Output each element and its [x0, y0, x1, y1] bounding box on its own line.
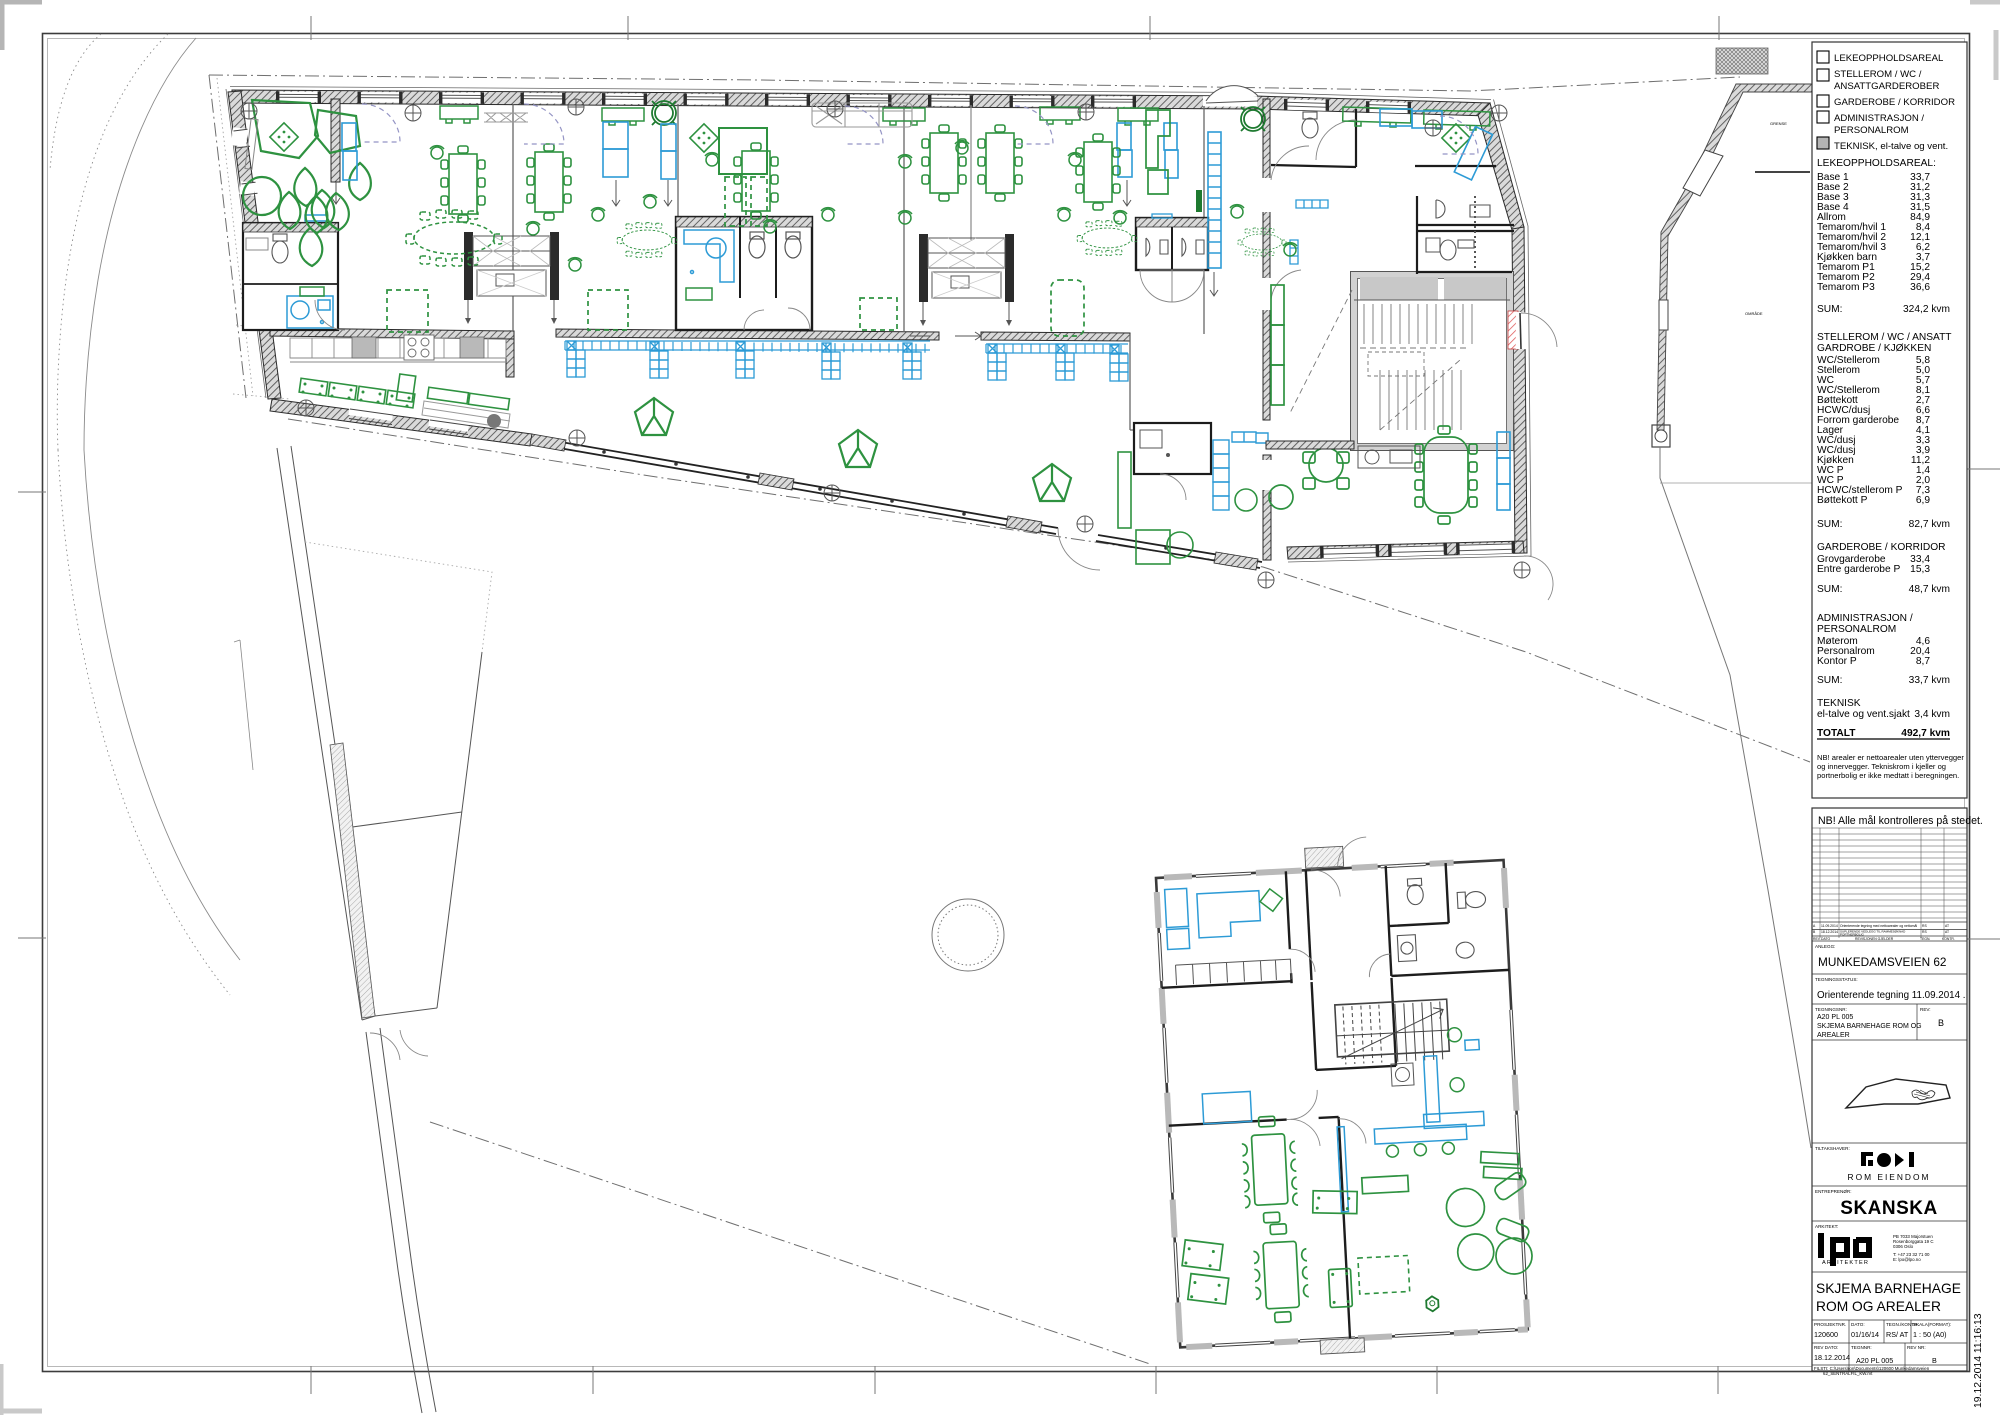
svg-text:GARDEROBE / KORRIDOR: GARDEROBE / KORRIDOR — [1834, 97, 1955, 108]
svg-text:Orienterende tegning med netto: Orienterende tegning med nettoarealer og… — [1840, 924, 1917, 928]
svg-text:ROM OG AREALER: ROM OG AREALER — [1816, 1299, 1941, 1314]
svg-text:PERSONALROM: PERSONALROM — [1834, 125, 1909, 136]
svg-text:SKALA(FORMAT):: SKALA(FORMAT): — [1913, 1322, 1951, 1327]
svg-text:REV.: REV. — [1813, 937, 1821, 941]
svg-text:DATO:: DATO: — [1851, 1322, 1865, 1327]
svg-text:TEKNISK, el-talve og vent.: TEKNISK, el-talve og vent. — [1834, 141, 1948, 152]
svg-text:492,7 kvm: 492,7 kvm — [1901, 728, 1950, 739]
svg-text:48,7 kvm: 48,7 kvm — [1909, 584, 1950, 595]
svg-text:DATO: DATO — [1821, 937, 1830, 941]
svg-text:18.12.2014: 18.12.2014 — [1814, 1353, 1850, 1362]
svg-text:RS/ AT: RS/ AT — [1886, 1330, 1909, 1339]
svg-text:82,7 kvm: 82,7 kvm — [1909, 519, 1950, 530]
svg-text:PORTNERBOLIG: PORTNERBOLIG — [1840, 933, 1864, 937]
svg-text:LEKEOPPHOLDSAREAL:: LEKEOPPHOLDSAREAL: — [1817, 158, 1936, 169]
svg-text:PROSJEKTNR.: PROSJEKTNR. — [1814, 1322, 1846, 1327]
svg-text:el-talve og vent.sjakt: el-talve og vent.sjakt — [1817, 709, 1910, 720]
svg-text:portnerbolig er ikke medtatt i: portnerbolig er ikke medtatt i beregning… — [1817, 771, 1959, 780]
svg-text:Orienterende tegning 11.09.201: Orienterende tegning 11.09.2014 . — [1817, 990, 1966, 1001]
svg-text:SUM:: SUM: — [1817, 304, 1842, 315]
svg-text:15,3: 15,3 — [1910, 564, 1930, 575]
svg-text:Bøttekott P: Bøttekott P — [1817, 495, 1868, 506]
svg-text:Kontor P: Kontor P — [1817, 656, 1857, 667]
svg-text:KONTR.: KONTR. — [1942, 937, 1955, 941]
svg-text:RS: RS — [1922, 930, 1927, 934]
svg-text:TEGN.: TEGN. — [1920, 937, 1930, 941]
svg-text:ARKITEKT:: ARKITEKT: — [1815, 1224, 1838, 1229]
svg-text:8,7: 8,7 — [1916, 656, 1930, 667]
svg-text:TEGNINGSSTATUS:: TEGNINGSSTATUS: — [1815, 977, 1858, 982]
svg-text:GARDEROBE / KORRIDOR: GARDEROBE / KORRIDOR — [1817, 542, 1946, 553]
svg-text:SKJEMA BARNEHAGE ROM OG: SKJEMA BARNEHAGE ROM OG — [1817, 1023, 1922, 1030]
svg-text:36,6: 36,6 — [1910, 282, 1930, 293]
svg-text:A20 PL 005: A20 PL 005 — [1856, 1356, 1893, 1365]
svg-text:ANLEGG:: ANLEGG: — [1815, 944, 1835, 949]
svg-text:NB! Alle mål kontrolleres på s: NB! Alle mål kontrolleres på stedet. — [1818, 815, 1983, 827]
svg-text:B: B — [1938, 1018, 1944, 1028]
svg-text:TEGNNR:: TEGNNR: — [1851, 1345, 1872, 1350]
svg-text:ADMINISTRASJON /: ADMINISTRASJON / — [1834, 113, 1924, 124]
svg-text:3,4 kvm: 3,4 kvm — [1914, 709, 1950, 720]
svg-text:ARKITEKTER: ARKITEKTER — [1822, 1260, 1869, 1266]
svg-text:18.12.2014: 18.12.2014 — [1821, 930, 1838, 934]
svg-text:STELLEROM / WC / ANSATT: STELLEROM / WC / ANSATT — [1817, 332, 1952, 343]
svg-text:RS: RS — [1922, 924, 1927, 928]
svg-text:ANSATTGARDEROBER: ANSATTGARDEROBER — [1834, 81, 1939, 92]
svg-text:MUNKEDAMSVEIEN 62: MUNKEDAMSVEIEN 62 — [1818, 955, 1947, 969]
svg-text:11.09.2014: 11.09.2014 — [1821, 924, 1838, 928]
svg-text:62_SENTRALFIL_KW.rvt: 62_SENTRALFIL_KW.rvt — [1823, 1371, 1873, 1376]
svg-text:AREALER: AREALER — [1817, 1032, 1850, 1039]
svg-text:REV NR:: REV NR: — [1907, 1345, 1926, 1350]
svg-text:REV:: REV: — [1920, 1007, 1931, 1012]
svg-text:01/16/14: 01/16/14 — [1851, 1330, 1879, 1339]
svg-text:120600: 120600 — [1814, 1330, 1838, 1339]
svg-text:TEKNISK: TEKNISK — [1817, 698, 1861, 709]
svg-text:Temarom P3: Temarom P3 — [1817, 282, 1875, 293]
svg-text:ADMINISTRASJON /: ADMINISTRASJON / — [1817, 613, 1913, 624]
svg-text:19.12.2014 11:16:13: 19.12.2014 11:16:13 — [1973, 1313, 1984, 1408]
svg-text:PERSONALROM: PERSONALROM — [1817, 624, 1896, 635]
svg-text:0306 Oslo: 0306 Oslo — [1893, 1244, 1914, 1249]
svg-text:SUM:: SUM: — [1817, 519, 1842, 530]
svg-text:A20 PL 005: A20 PL 005 — [1817, 1014, 1853, 1021]
svg-text:GARDROBE / KJØKKEN: GARDROBE / KJØKKEN — [1817, 343, 1931, 354]
svg-text:SKANSKA: SKANSKA — [1840, 1198, 1937, 1219]
svg-text:REVISJONEN GJELDER: REVISJONEN GJELDER — [1855, 937, 1894, 941]
svg-text:33,7 kvm: 33,7 kvm — [1909, 675, 1950, 686]
svg-text:324,2 kvm: 324,2 kvm — [1903, 304, 1950, 315]
svg-text:LEKEOPPHOLDSAREAL: LEKEOPPHOLDSAREAL — [1834, 53, 1944, 64]
svg-text:6,9: 6,9 — [1916, 495, 1930, 506]
svg-text:AT: AT — [1945, 924, 1949, 928]
svg-text:Entre garderobe P: Entre garderobe P — [1817, 564, 1900, 575]
svg-text:AT: AT — [1945, 930, 1949, 934]
svg-text:GRENSE: GRENSE — [1770, 121, 1787, 126]
svg-text:REV DATO:: REV DATO: — [1814, 1345, 1838, 1350]
svg-text:E: lpo@lpo.no: E: lpo@lpo.no — [1893, 1257, 1921, 1262]
svg-text:TILTAKSHAVER:: TILTAKSHAVER: — [1815, 1146, 1850, 1151]
svg-text:og innervegger. Tekniskrom i k: og innervegger. Tekniskrom i kjeller og — [1817, 762, 1946, 771]
svg-text:ROM EIENDOM: ROM EIENDOM — [1848, 1172, 1931, 1182]
svg-text:B: B — [1932, 1356, 1937, 1365]
svg-text:1 : 50 (A0): 1 : 50 (A0) — [1913, 1330, 1947, 1339]
svg-text:OMRÅDE: OMRÅDE — [1745, 311, 1763, 316]
svg-text:SKJEMA BARNEHAGE: SKJEMA BARNEHAGE — [1816, 1281, 1961, 1296]
svg-text:TEGNINGSNR:: TEGNINGSNR: — [1815, 1007, 1847, 1012]
svg-text:SUM:: SUM: — [1817, 675, 1842, 686]
svg-text:NB! arealer er nettoarealer ut: NB! arealer er nettoarealer uten ytterve… — [1817, 753, 1964, 762]
svg-text:SUM:: SUM: — [1817, 584, 1842, 595]
svg-text:ENTREPRENØR:: ENTREPRENØR: — [1815, 1189, 1852, 1194]
svg-text:STELLEROM / WC /: STELLEROM / WC / — [1834, 69, 1922, 80]
svg-text:TOTALT: TOTALT — [1817, 728, 1856, 739]
